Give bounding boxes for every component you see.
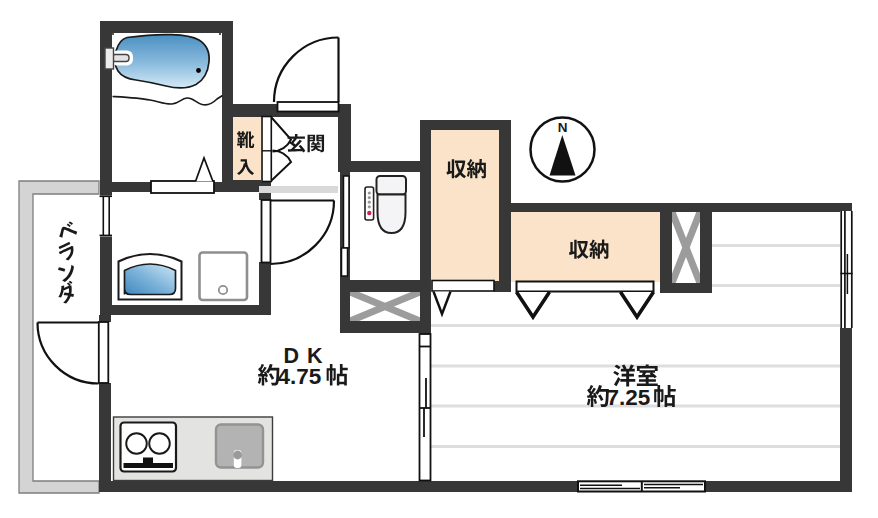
svg-text:4.75: 4.75 [278,364,322,389]
svg-text:7.25: 7.25 [607,385,651,410]
svg-text:N: N [558,120,568,135]
